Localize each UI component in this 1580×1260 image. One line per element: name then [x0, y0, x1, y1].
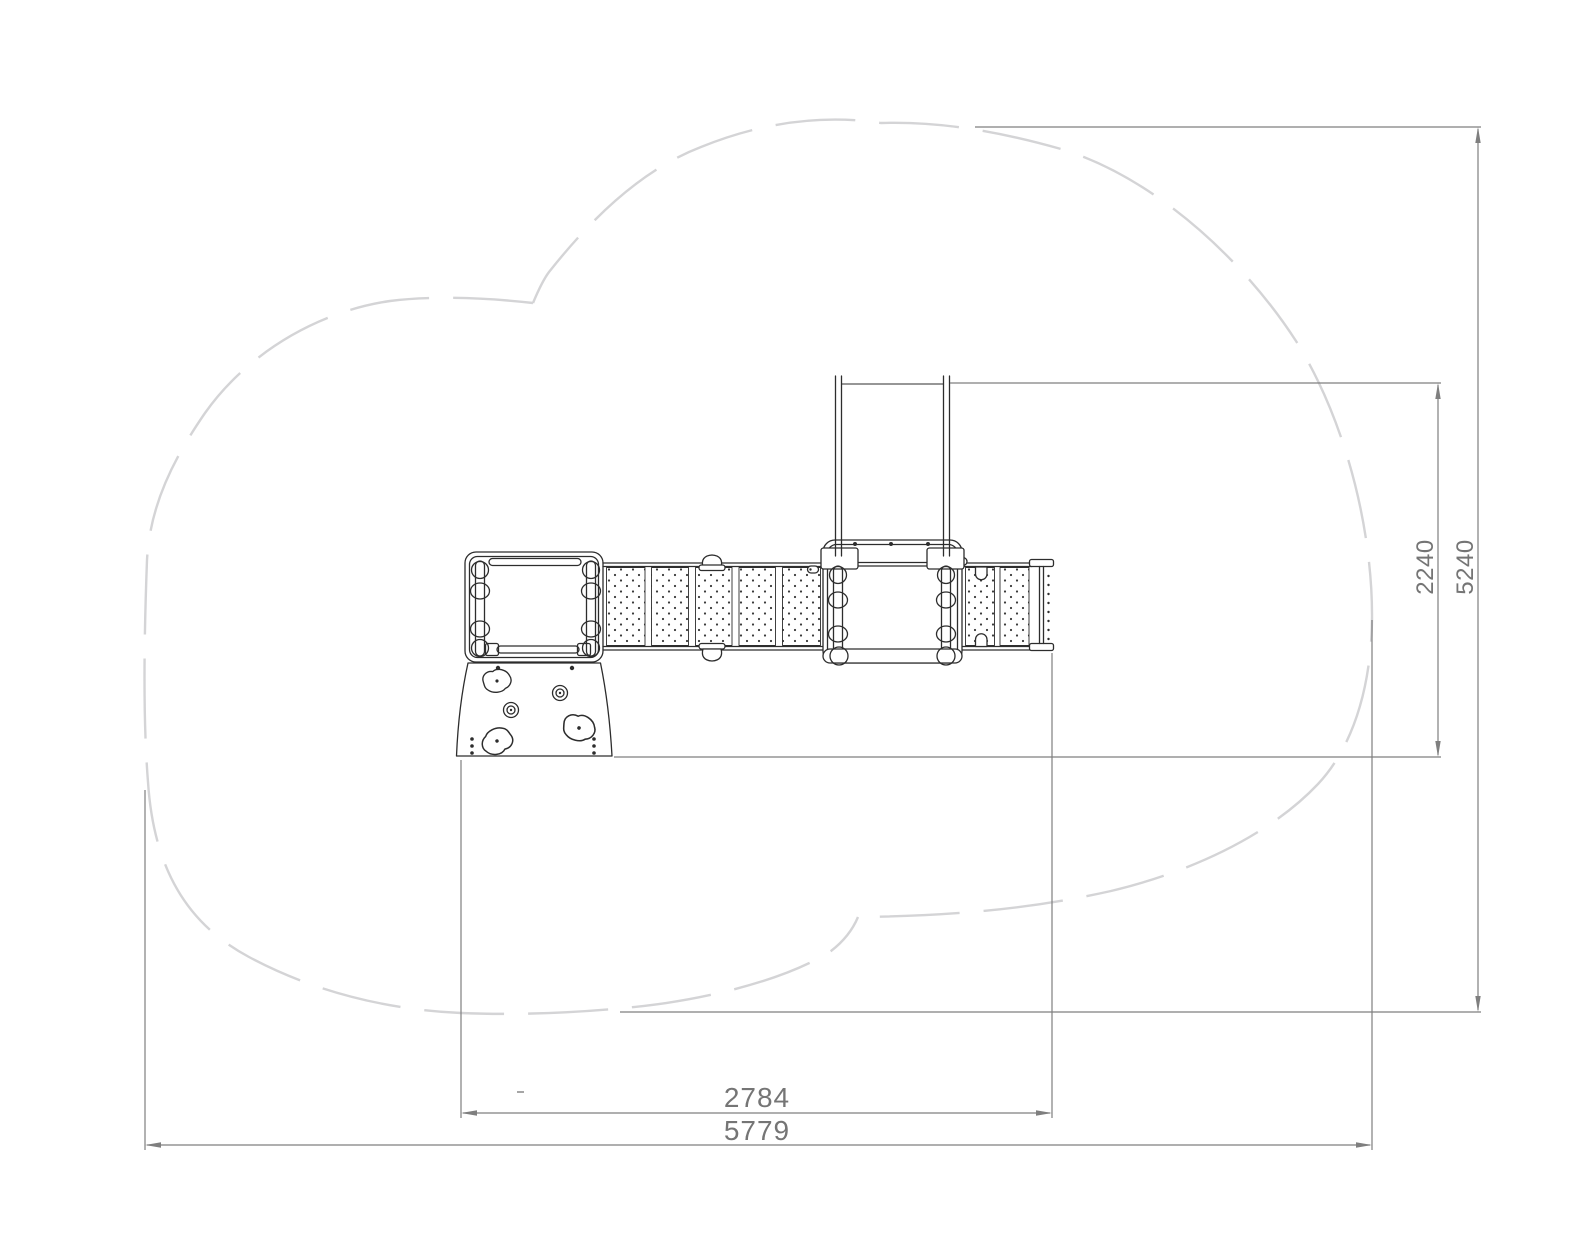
tread-panel	[783, 568, 821, 646]
bridge-walkway	[603, 555, 823, 661]
tread-panel	[696, 568, 733, 646]
tread-slot	[976, 634, 988, 647]
platform-left	[465, 552, 603, 670]
drawing-canvas: 2240 5240 2784 5779	[0, 0, 1580, 1260]
equipment	[457, 376, 1054, 758]
climbing-wall-outline	[457, 663, 613, 756]
climbing-hold	[483, 669, 511, 692]
deck-screw-dots	[496, 666, 574, 670]
climbing-wall	[457, 663, 613, 758]
bridge-clamp-top	[699, 555, 725, 571]
dim-label-structure-depth: 2240	[1412, 539, 1439, 594]
tread-slot	[976, 567, 988, 580]
dim-label-zone-width: 5779	[724, 1115, 790, 1146]
slide-rails	[836, 376, 950, 556]
treads-right	[955, 558, 1054, 651]
slide-platform	[821, 540, 964, 665]
plan-drawing: 2240 5240 2784 5779	[0, 0, 1580, 1260]
tread-panel	[1000, 568, 1029, 646]
tread-panel	[739, 568, 776, 646]
end-rail	[1030, 560, 1054, 651]
tread-panel	[607, 568, 646, 646]
deck-latch	[808, 566, 819, 573]
handrail-bottom	[823, 649, 962, 663]
dim-label-structure-width: 2784	[724, 1082, 790, 1113]
bridge-clamp-bottom	[699, 644, 725, 662]
wall-bolt	[504, 703, 519, 718]
tread-panel	[652, 568, 689, 646]
dim-label-zone-depth: 5240	[1452, 539, 1479, 594]
wall-bolt	[553, 686, 568, 701]
climbing-hold	[478, 724, 516, 758]
safety-zone-right-lobe	[533, 120, 1372, 917]
